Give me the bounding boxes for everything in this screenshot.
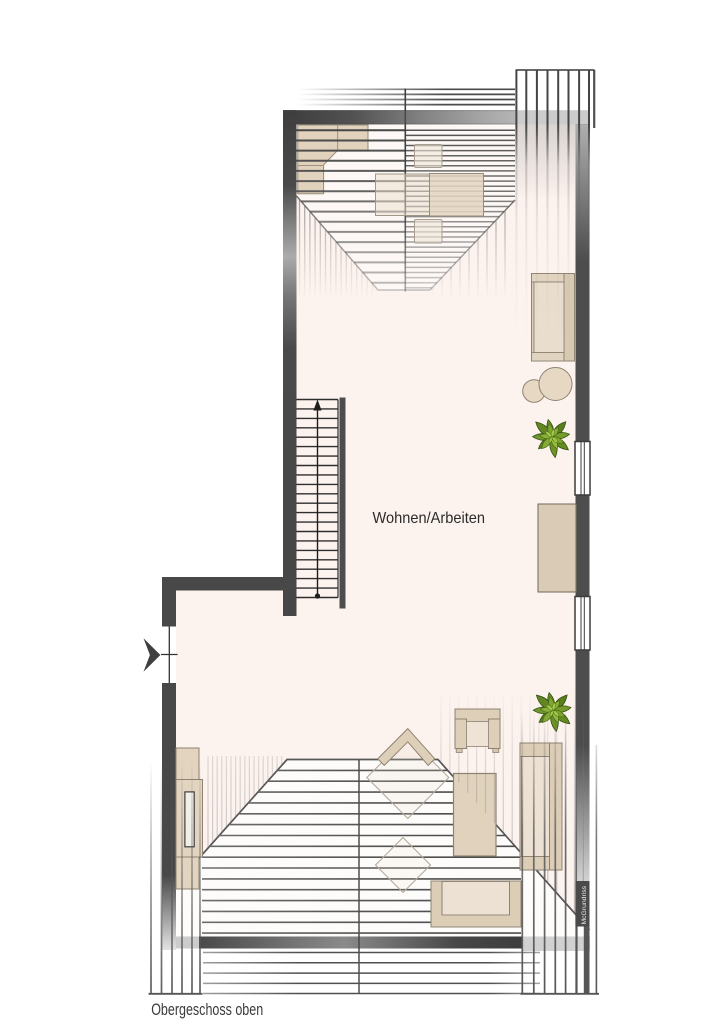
svg-text:Wohnen/Arbeiten: Wohnen/Arbeiten (373, 510, 486, 527)
svg-text:McGrundriss: McGrundriss (581, 885, 588, 924)
svg-text:Obergeschoss oben: Obergeschoss oben (151, 1001, 263, 1019)
